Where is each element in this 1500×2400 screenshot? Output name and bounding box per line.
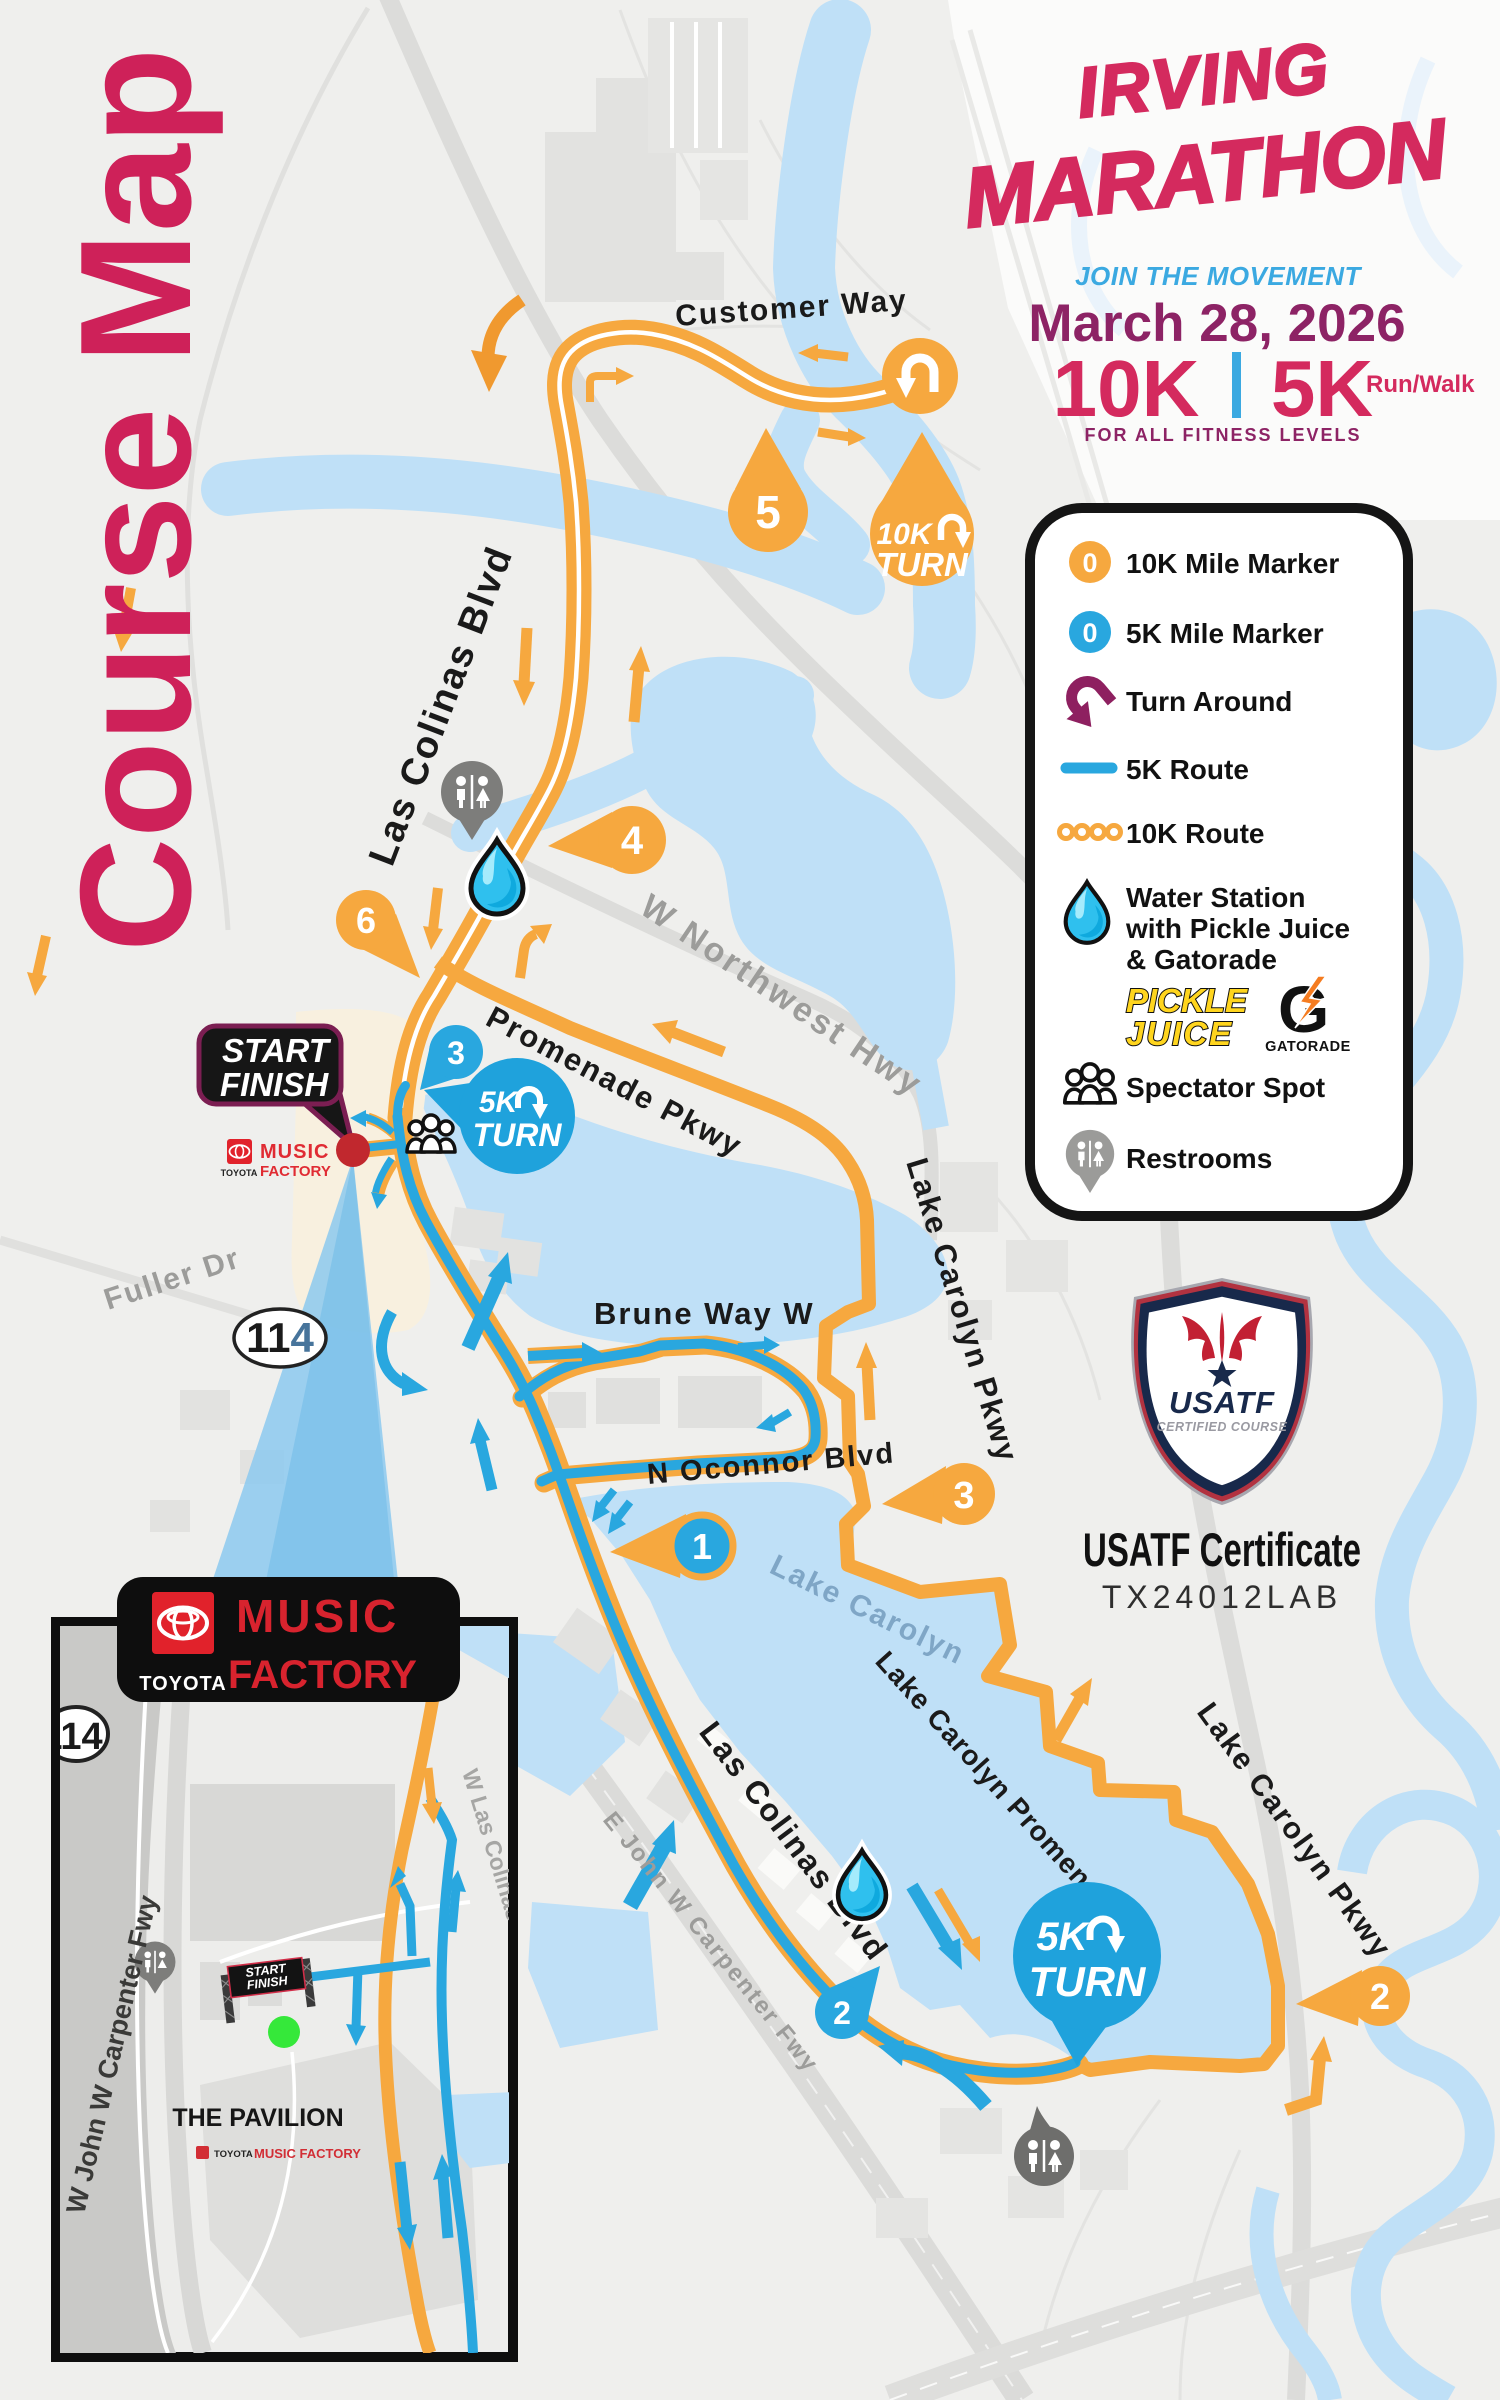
svg-text:0: 0 [1082,618,1097,648]
svg-text:TURN: TURN [876,546,969,583]
svg-text:Turn Around: Turn Around [1126,686,1292,717]
svg-text:5K: 5K [1036,1915,1090,1959]
svg-text:GATORADE: GATORADE [1265,1039,1351,1055]
svg-text:THE PAVILION: THE PAVILION [172,2104,343,2132]
svg-text:5K Route: 5K Route [1126,754,1249,785]
svg-text:Course Map: Course Map [48,48,224,952]
svg-text:114: 114 [246,1314,314,1361]
svg-text:with Pickle Juice: with Pickle Juice [1125,913,1350,944]
svg-text:MUSIC: MUSIC [260,1141,329,1163]
svg-text:Brune Way W: Brune Way W [594,1296,815,1331]
svg-text:& Gatorade: & Gatorade [1126,944,1277,975]
svg-text:MUSIC FACTORY: MUSIC FACTORY [254,2146,361,2161]
svg-text:MUSIC: MUSIC [236,1590,399,1642]
svg-text:4: 4 [621,819,644,863]
svg-text:JOIN THE MOVEMENT: JOIN THE MOVEMENT [1075,261,1362,291]
svg-text:5: 5 [755,486,781,538]
svg-text:2: 2 [833,1995,851,2031]
svg-text:START: START [222,1032,332,1069]
svg-text:3: 3 [953,1475,974,1517]
svg-text:FOR ALL FITNESS LEVELS: FOR ALL FITNESS LEVELS [1084,425,1361,445]
svg-text:TOYOTA: TOYOTA [139,1673,226,1695]
svg-text:FACTORY: FACTORY [228,1653,417,1697]
svg-text:5K Mile Marker: 5K Mile Marker [1126,618,1324,649]
svg-text:5K: 5K [479,1086,520,1119]
svg-text:TX24012LAB: TX24012LAB [1102,1579,1342,1615]
svg-text:JUICE: JUICE [1126,1015,1233,1052]
svg-text:2: 2 [1370,1976,1390,2017]
svg-text:3: 3 [447,1035,465,1071]
svg-text:Run/Walk: Run/Walk [1366,371,1475,398]
svg-text:10K Mile Marker: 10K Mile Marker [1126,548,1339,579]
svg-text:10K: 10K [1053,344,1200,433]
svg-text:10K Route: 10K Route [1126,818,1264,849]
svg-text:1: 1 [692,1526,712,1567]
svg-text:Water Station: Water Station [1126,882,1305,913]
svg-text:TURN: TURN [473,1117,563,1153]
svg-text:0: 0 [1082,548,1097,578]
svg-text:USATF: USATF [1169,1385,1275,1420]
svg-text:CERTIFIED COURSE: CERTIFIED COURSE [1157,1420,1288,1434]
svg-text:Spectator Spot: Spectator Spot [1126,1072,1325,1103]
svg-text:Restrooms: Restrooms [1126,1143,1272,1174]
svg-text:5K: 5K [1271,344,1373,433]
svg-text:PICKLE: PICKLE [1126,982,1248,1019]
svg-text:FACTORY: FACTORY [260,1163,331,1180]
svg-text:USATF Certificate: USATF Certificate [1083,1523,1361,1576]
svg-text:FINISH: FINISH [220,1066,329,1103]
svg-text:TOYOTA: TOYOTA [221,1168,258,1178]
svg-text:TOYOTA: TOYOTA [214,2149,253,2160]
svg-text:TURN: TURN [1029,1958,1147,2005]
svg-text:6: 6 [356,900,376,941]
